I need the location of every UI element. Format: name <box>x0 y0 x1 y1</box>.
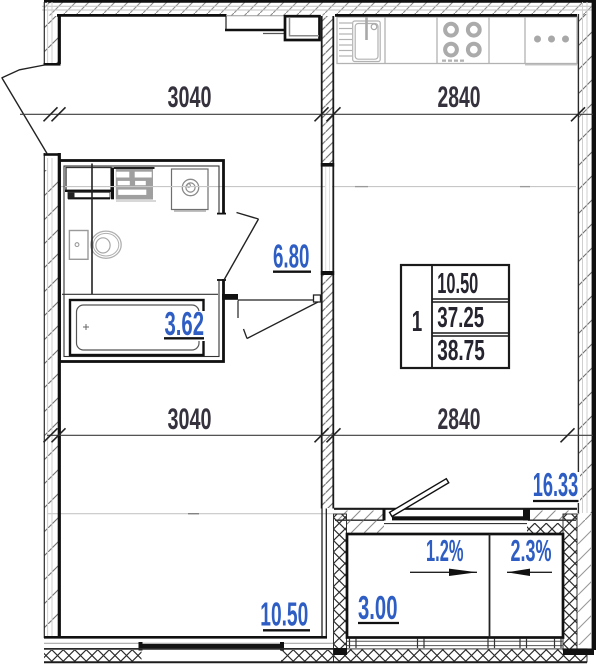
svg-text:37.25: 37.25 <box>437 302 484 334</box>
svg-text:10.50: 10.50 <box>260 596 308 633</box>
svg-text:38.75: 38.75 <box>437 335 484 367</box>
svg-text:2840: 2840 <box>438 403 481 436</box>
svg-text:16.33: 16.33 <box>533 466 578 503</box>
svg-text:3.00: 3.00 <box>358 589 397 626</box>
svg-text:10.50: 10.50 <box>437 267 478 299</box>
svg-text:3040: 3040 <box>168 403 212 436</box>
svg-text:2840: 2840 <box>438 81 481 114</box>
svg-text:3040: 3040 <box>168 81 212 114</box>
svg-text:6.80: 6.80 <box>273 238 309 275</box>
svg-text:1: 1 <box>412 306 422 338</box>
svg-text:1.2%: 1.2% <box>426 535 463 569</box>
svg-text:3.62: 3.62 <box>165 305 204 342</box>
svg-text:2.3%: 2.3% <box>511 534 552 568</box>
